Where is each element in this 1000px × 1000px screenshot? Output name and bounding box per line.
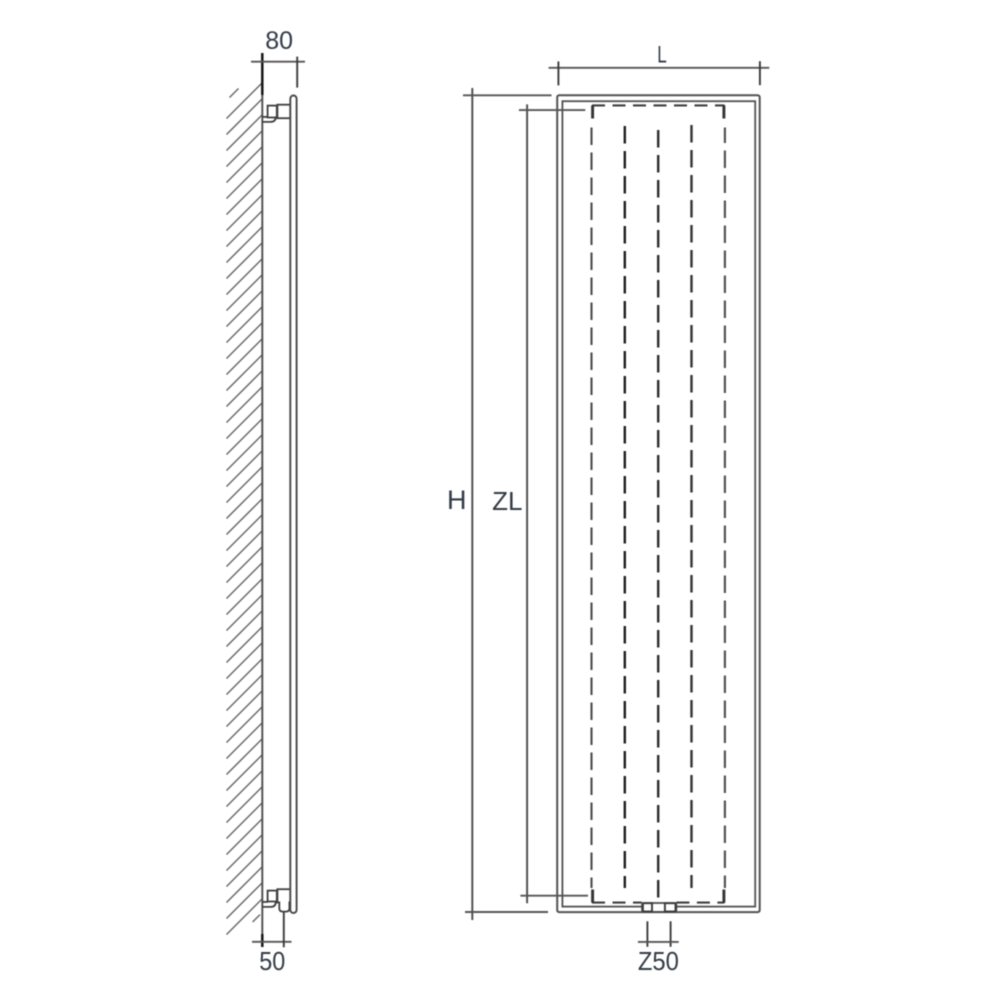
svg-text:80: 80 [265, 27, 293, 55]
svg-text:Z50: Z50 [638, 946, 679, 976]
svg-text:ZL: ZL [492, 486, 522, 516]
svg-text:H: H [447, 485, 467, 515]
svg-text:L: L [657, 42, 667, 69]
svg-text:50: 50 [259, 946, 285, 976]
